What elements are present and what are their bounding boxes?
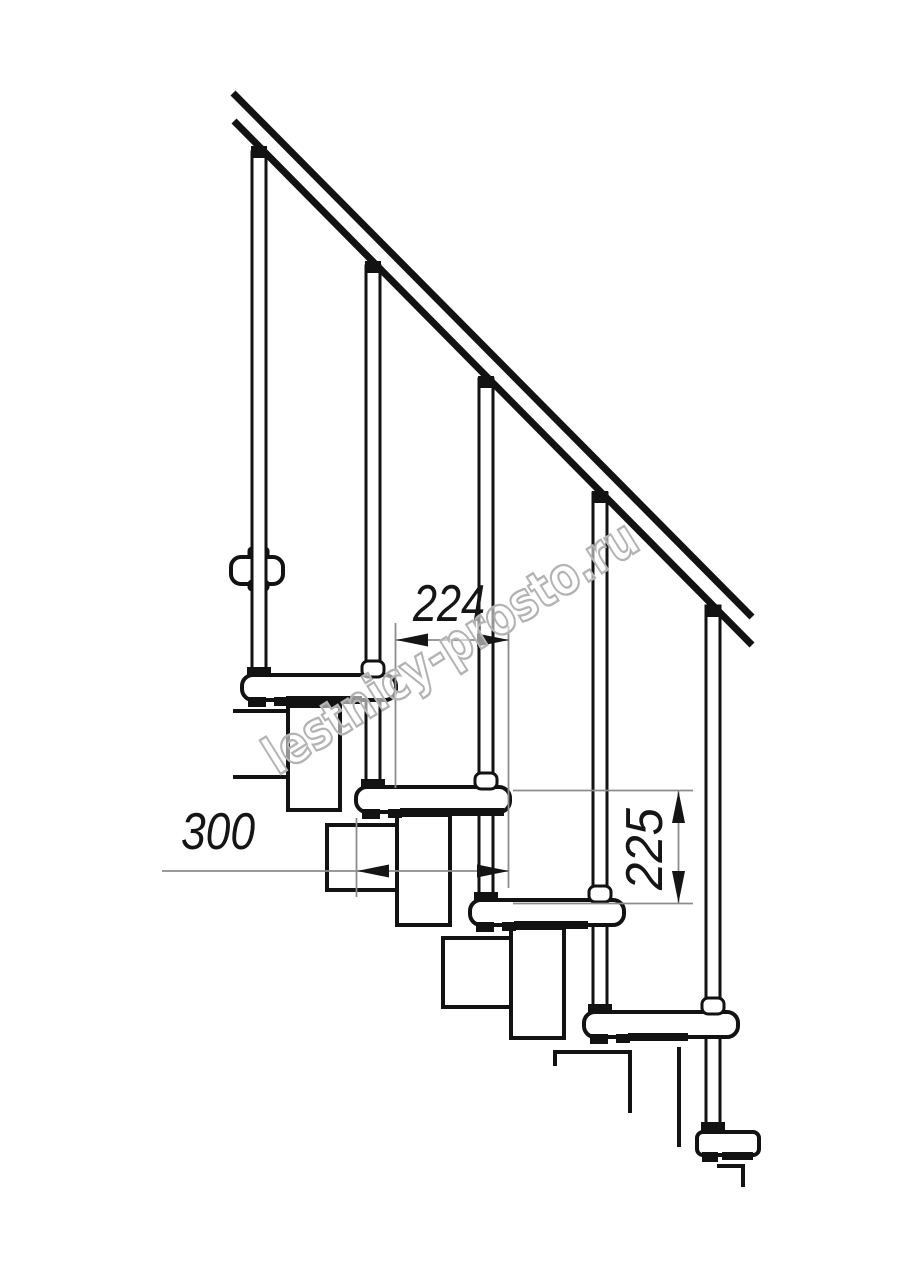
tread-4-foot <box>616 1034 630 1043</box>
baluster-3-foot <box>474 892 498 902</box>
tread-1-foot <box>248 697 266 707</box>
tread-3-shadow-band <box>514 921 588 929</box>
baluster-4-foot <box>588 1004 612 1014</box>
tread-3-foot <box>502 922 516 931</box>
module-box-5-cut <box>717 1166 743 1187</box>
baluster-1 <box>252 152 266 676</box>
tread-2-shadow-band <box>400 808 504 816</box>
handrail-connector-2 <box>365 261 381 273</box>
watermark-text: lestnicy-prosto.ru <box>253 508 649 787</box>
baluster-5-foot <box>701 1122 725 1132</box>
handrail-connector-1 <box>251 146 267 158</box>
baluster-1-foot <box>247 667 271 677</box>
dimension-label-300: 300 <box>181 803 255 861</box>
baluster-5 <box>706 606 720 1132</box>
baluster-4-collar <box>589 886 611 902</box>
handrail-connector-3 <box>478 376 494 388</box>
technical-drawing-page: 224 300 225 lestnicy-prosto.ru <box>0 0 914 1280</box>
module-connector-2 <box>397 815 450 925</box>
tread-1-foot <box>274 697 288 706</box>
module-connector-3 <box>511 928 564 1038</box>
bottom-step <box>697 1132 759 1155</box>
tread-4-foot <box>590 1034 608 1044</box>
handrail-connector-4 <box>592 491 608 503</box>
dimension-label-225: 225 <box>616 807 674 891</box>
tread-2-foot <box>388 809 402 818</box>
handrail-connector-5 <box>705 605 721 617</box>
module-box-4-cut <box>555 1052 630 1113</box>
baluster-2-foot <box>361 779 385 789</box>
tread-2-foot <box>362 809 380 819</box>
modular-staircase-side-view-drawing: 224 300 225 lestnicy-prosto.ru <box>0 0 914 1280</box>
module-box-3 <box>443 938 518 1007</box>
tread-3-foot <box>476 922 494 932</box>
bottom-step-shadow-band <box>722 1152 753 1160</box>
tread-4-shadow-band <box>628 1033 688 1041</box>
bottom-step-foot <box>702 1152 718 1162</box>
baluster-5-collar <box>702 998 724 1014</box>
baluster-3-collar <box>475 773 497 789</box>
